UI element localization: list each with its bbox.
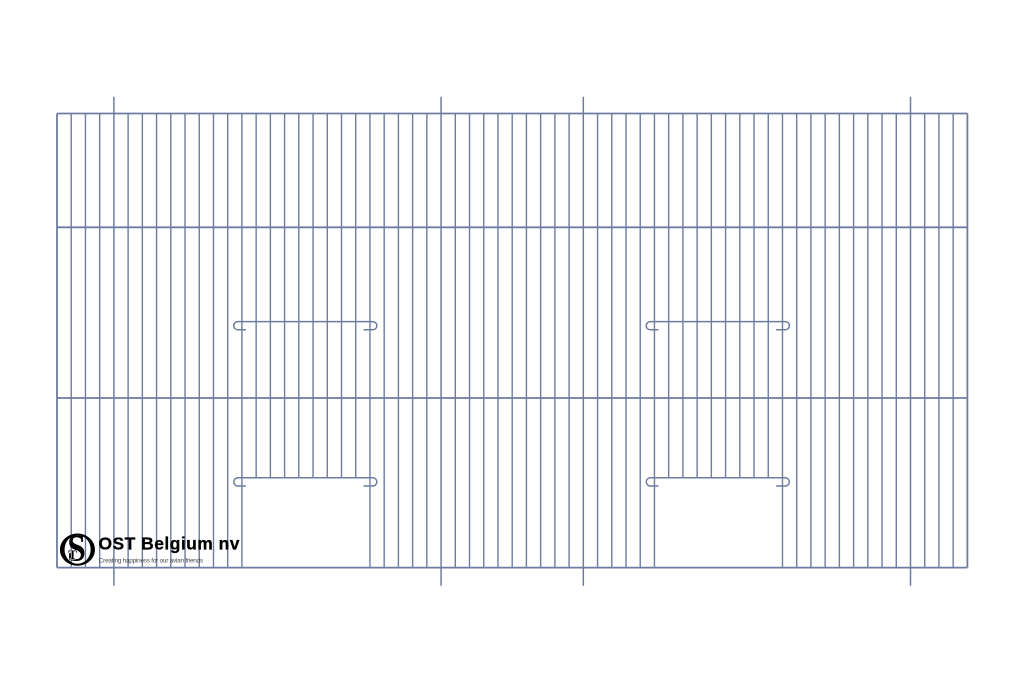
svg-text:OST Belgium nv: OST Belgium nv: [99, 534, 240, 554]
svg-text:Creating happiness for our avi: Creating happiness for our avian friends: [99, 558, 203, 565]
svg-text:T: T: [68, 547, 77, 562]
